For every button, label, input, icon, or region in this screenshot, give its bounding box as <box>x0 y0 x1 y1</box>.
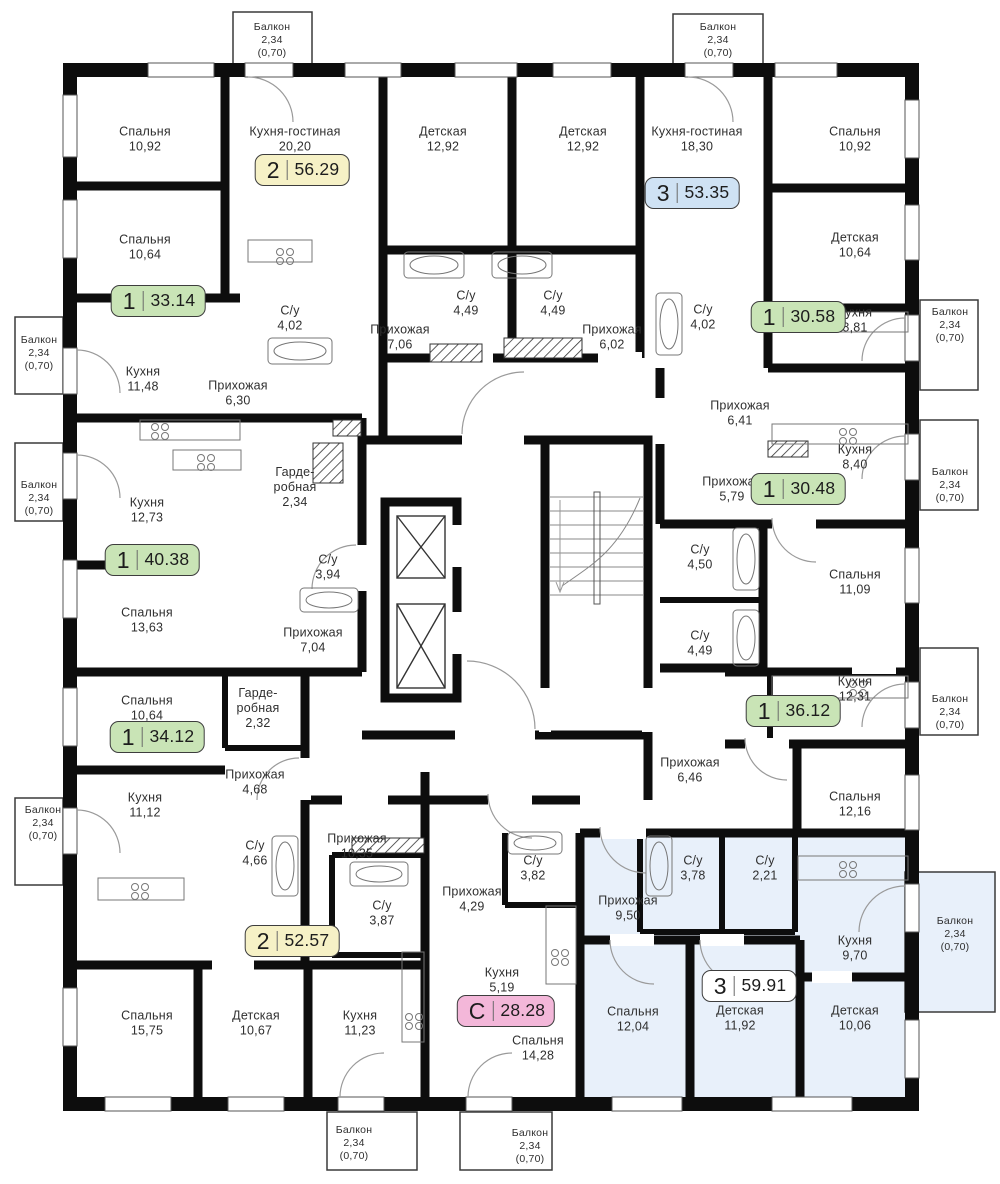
room-area: 13,63 <box>121 620 173 635</box>
room-area: 9,70 <box>838 948 872 963</box>
room-area: 4,66 <box>242 853 267 868</box>
balcony-coef: (0,70) <box>21 359 57 372</box>
room-area: 14,28 <box>512 1048 564 1063</box>
room-area: 20,20 <box>249 139 340 154</box>
room-name: Детская <box>232 1008 280 1023</box>
badge-rooms-count: 2 <box>255 930 276 953</box>
room-label: Прихожая9,50 <box>598 893 658 923</box>
badge-area: 30.58 <box>791 308 836 326</box>
room-area: 12,92 <box>419 139 467 154</box>
room-area: 4,49 <box>687 643 712 658</box>
room-name: Детская <box>831 230 879 245</box>
room-area: 11,92 <box>716 1018 764 1033</box>
room-name: Спальня <box>829 567 881 582</box>
balcony-area: 2,34 <box>21 492 57 505</box>
apartment-badge[interactable]: 133.14 <box>111 285 206 317</box>
room-label: С/у4,02 <box>690 302 715 332</box>
room-name: Кухня <box>838 442 872 457</box>
badge-rooms-count: 2 <box>265 159 286 182</box>
room-name: Спальня <box>119 232 171 247</box>
balcony-label: Балкон2,34(0,70) <box>932 693 968 731</box>
room-label: С/у3,78 <box>680 853 705 883</box>
room-name: Гарде- робная <box>237 686 280 716</box>
apartment-badge[interactable]: 353.35 <box>645 177 740 209</box>
room-name: Прихожая <box>598 893 658 908</box>
balcony-label: Балкон2,34(0,70) <box>21 334 57 372</box>
room-name: Прихожая <box>710 398 770 413</box>
room-area: 10,35 <box>327 846 387 861</box>
badge-divider <box>137 550 138 570</box>
apartment-badge[interactable]: 136.12 <box>746 695 841 727</box>
room-name: Детская <box>419 124 467 139</box>
badge-area: 52.57 <box>285 932 330 950</box>
room-label: Прихожая6,30 <box>208 378 268 408</box>
room-name: Кухня <box>126 364 160 379</box>
room-area: 12,31 <box>838 689 872 704</box>
room-name: Кухня <box>130 495 164 510</box>
room-name: Кухня <box>838 933 872 948</box>
room-area: 8,40 <box>838 457 872 472</box>
room-name: Спальня <box>829 789 881 804</box>
room-name: Прихожая <box>283 625 343 640</box>
room-name: С/у <box>277 303 302 318</box>
room-area: 7,06 <box>370 337 430 352</box>
room-area: 5,19 <box>485 980 519 995</box>
balcony-name: Балкон <box>932 306 968 319</box>
room-area: 2,21 <box>752 868 777 883</box>
room-label: С/у4,49 <box>453 288 478 318</box>
badge-divider <box>492 1001 493 1021</box>
room-label: Спальня10,92 <box>119 124 171 154</box>
apartment-badge[interactable]: 134.12 <box>110 721 205 753</box>
balcony-area: 2,34 <box>700 34 736 47</box>
room-area: 2,34 <box>274 494 317 509</box>
balcony-coef: (0,70) <box>932 491 968 504</box>
room-label: С/у4,49 <box>540 288 565 318</box>
room-area: 3,82 <box>520 868 545 883</box>
balcony-coef: (0,70) <box>336 1149 372 1162</box>
badge-divider <box>677 183 678 203</box>
room-name: С/у <box>687 542 712 557</box>
room-label: Прихожая6,46 <box>660 755 720 785</box>
balcony-coef: (0,70) <box>932 331 968 344</box>
room-label: Детская11,92 <box>716 1003 764 1033</box>
badge-divider <box>277 931 278 951</box>
balcony-name: Балкон <box>21 479 57 492</box>
room-area: 9,50 <box>598 908 658 923</box>
room-name: Спальня <box>121 605 173 620</box>
room-label: Спальня10,64 <box>121 693 173 723</box>
room-label: Прихожая6,41 <box>710 398 770 428</box>
balcony-area: 2,34 <box>336 1137 372 1150</box>
room-area: 11,12 <box>128 805 162 820</box>
badge-rooms-count: 3 <box>655 182 676 205</box>
room-name: Спальня <box>121 693 173 708</box>
room-label: Кухня11,23 <box>343 1008 377 1038</box>
room-name: Прихожая <box>208 378 268 393</box>
balcony-name: Балкон <box>700 21 736 34</box>
room-name: Детская <box>559 124 607 139</box>
apartment-badge[interactable]: 256.29 <box>255 154 350 186</box>
room-label: С/у3,94 <box>315 552 340 582</box>
room-area: 11,23 <box>343 1023 377 1038</box>
badge-rooms-count: 3 <box>712 975 733 998</box>
room-label: Кухня-гостиная18,30 <box>651 124 742 154</box>
room-name: С/у <box>540 288 565 303</box>
badge-area: 30.48 <box>791 480 836 498</box>
room-name: Прихожая <box>442 884 502 899</box>
room-label: Прихожая7,04 <box>283 625 343 655</box>
room-name: Прихожая <box>660 755 720 770</box>
room-label: С/у3,82 <box>520 853 545 883</box>
badge-divider <box>734 976 735 996</box>
room-label: Прихожая4,68 <box>225 767 285 797</box>
room-label: Спальня12,16 <box>829 789 881 819</box>
room-area: 10,64 <box>119 247 171 262</box>
room-area: 12,04 <box>607 1019 659 1034</box>
badge-rooms-count: 1 <box>761 478 782 501</box>
room-area: 11,09 <box>829 582 881 597</box>
room-label: Детская12,92 <box>419 124 467 154</box>
badge-divider <box>287 160 288 180</box>
balcony-label: Балкон2,34(0,70) <box>700 21 736 59</box>
room-name: Кухня-гостиная <box>651 124 742 139</box>
room-name: С/у <box>680 853 705 868</box>
balcony-name: Балкон <box>932 693 968 706</box>
room-area: 4,49 <box>540 303 565 318</box>
room-name: Кухня <box>485 965 519 980</box>
room-label: С/у4,49 <box>687 628 712 658</box>
room-name: Кухня-гостиная <box>249 124 340 139</box>
badge-rooms-count: 1 <box>115 549 136 572</box>
apartment-badge[interactable]: 130.58 <box>751 301 846 333</box>
room-label: Детская10,67 <box>232 1008 280 1038</box>
balcony-label: Балкон2,34(0,70) <box>937 915 973 953</box>
room-label: Детская12,92 <box>559 124 607 154</box>
room-area: 10,92 <box>829 139 881 154</box>
room-area: 4,02 <box>277 318 302 333</box>
room-name: С/у <box>242 838 267 853</box>
floor-plan: Спальня10,92Кухня-гостиная20,20Детская12… <box>0 0 1000 1184</box>
room-name: Кухня <box>128 790 162 805</box>
balcony-area: 2,34 <box>932 706 968 719</box>
room-label: Гарде- робная2,34 <box>274 465 317 509</box>
room-area: 3,78 <box>680 868 705 883</box>
badge-area: 53.35 <box>685 184 730 202</box>
room-name: С/у <box>520 853 545 868</box>
balcony-name: Балкон <box>336 1124 372 1137</box>
balcony-coef: (0,70) <box>937 940 973 953</box>
room-label: С/у4,50 <box>687 542 712 572</box>
room-name: Прихожая <box>225 767 285 782</box>
room-label: Кухня9,70 <box>838 933 872 963</box>
balcony-area: 2,34 <box>25 817 61 830</box>
room-area: 4,02 <box>690 317 715 332</box>
room-area: 4,29 <box>442 899 502 914</box>
room-area: 6,46 <box>660 770 720 785</box>
room-area: 10,92 <box>119 139 171 154</box>
room-name: Прихожая <box>370 322 430 337</box>
room-label: Детская10,64 <box>831 230 879 260</box>
balcony-label: Балкон2,34(0,70) <box>932 466 968 504</box>
apartment-badge[interactable]: 252.57 <box>245 925 340 957</box>
balcony-name: Балкон <box>932 466 968 479</box>
room-area: 7,04 <box>283 640 343 655</box>
room-area: 6,02 <box>582 337 642 352</box>
badge-divider <box>783 307 784 327</box>
room-area: 3,94 <box>315 567 340 582</box>
room-name: С/у <box>315 552 340 567</box>
balcony-coef: (0,70) <box>254 46 290 59</box>
room-label: Кухня11,48 <box>126 364 160 394</box>
apartment-badge[interactable]: 130.48 <box>751 473 846 505</box>
room-label: Кухня12,73 <box>130 495 164 525</box>
balcony-label: Балкон2,34(0,70) <box>21 479 57 517</box>
balcony-label: Балкон2,34(0,70) <box>25 804 61 842</box>
room-area: 4,50 <box>687 557 712 572</box>
apartment-badge[interactable]: С28.28 <box>457 995 555 1027</box>
balcony-coef: (0,70) <box>932 718 968 731</box>
room-name: Детская <box>716 1003 764 1018</box>
room-name: Кухня <box>838 674 872 689</box>
room-label: Кухня5,19 <box>485 965 519 995</box>
badge-rooms-count: 1 <box>761 306 782 329</box>
badge-rooms-count: С <box>467 1000 492 1023</box>
badge-area: 40.38 <box>145 551 190 569</box>
balcony-label: Балкон2,34(0,70) <box>336 1124 372 1162</box>
balcony-label: Балкон2,34(0,70) <box>512 1127 548 1165</box>
room-label: Кухня8,40 <box>838 442 872 472</box>
badge-area: 28.28 <box>500 1002 545 1020</box>
room-name: Спальня <box>121 1008 173 1023</box>
room-label: Спальня15,75 <box>121 1008 173 1038</box>
badge-rooms-count: 1 <box>121 290 142 313</box>
balcony-label: Балкон2,34(0,70) <box>254 21 290 59</box>
room-area: 10,06 <box>831 1018 879 1033</box>
room-area: 12,92 <box>559 139 607 154</box>
room-label: С/у4,02 <box>277 303 302 333</box>
apartment-badge[interactable]: 359.91 <box>702 970 797 1002</box>
badge-area: 33.14 <box>151 292 196 310</box>
balcony-label: Балкон2,34(0,70) <box>932 306 968 344</box>
balcony-name: Балкон <box>254 21 290 34</box>
room-name: Прихожая <box>582 322 642 337</box>
room-name: Гарде- робная <box>274 465 317 495</box>
room-name: Спальня <box>607 1004 659 1019</box>
room-area: 6,41 <box>710 413 770 428</box>
badge-rooms-count: 1 <box>120 726 141 749</box>
room-label: Спальня10,92 <box>829 124 881 154</box>
balcony-name: Балкон <box>512 1127 548 1140</box>
balcony-area: 2,34 <box>512 1140 548 1153</box>
room-label: Кухня-гостиная20,20 <box>249 124 340 154</box>
room-area: 11,48 <box>126 379 160 394</box>
room-label: Спальня11,09 <box>829 567 881 597</box>
room-area: 18,30 <box>651 139 742 154</box>
room-label: Спальня13,63 <box>121 605 173 635</box>
badge-area: 36.12 <box>786 702 831 720</box>
balcony-area: 2,34 <box>21 347 57 360</box>
balcony-coef: (0,70) <box>21 504 57 517</box>
room-name: С/у <box>453 288 478 303</box>
room-label: Прихожая10,35 <box>327 831 387 861</box>
room-label: С/у3,87 <box>369 898 394 928</box>
room-name: Спальня <box>829 124 881 139</box>
balcony-coef: (0,70) <box>700 46 736 59</box>
room-label: С/у4,66 <box>242 838 267 868</box>
balcony-area: 2,34 <box>932 479 968 492</box>
balcony-name: Балкон <box>25 804 61 817</box>
balcony-name: Балкон <box>937 915 973 928</box>
room-label: Прихожая6,02 <box>582 322 642 352</box>
room-name: Спальня <box>119 124 171 139</box>
room-area: 12,16 <box>829 804 881 819</box>
room-label: С/у2,21 <box>752 853 777 883</box>
room-label: Гарде- робная2,32 <box>237 686 280 730</box>
badge-divider <box>143 291 144 311</box>
balcony-area: 2,34 <box>254 34 290 47</box>
room-name: С/у <box>752 853 777 868</box>
badge-area: 59.91 <box>742 977 787 995</box>
badge-divider <box>783 479 784 499</box>
room-label: Спальня12,04 <box>607 1004 659 1034</box>
room-name: С/у <box>687 628 712 643</box>
badge-area: 56.29 <box>295 161 340 179</box>
room-area: 4,68 <box>225 782 285 797</box>
room-name: Кухня <box>343 1008 377 1023</box>
room-name: С/у <box>369 898 394 913</box>
balcony-coef: (0,70) <box>512 1152 548 1165</box>
balcony-name: Балкон <box>21 334 57 347</box>
room-name: Детская <box>831 1003 879 1018</box>
room-label: Кухня11,12 <box>128 790 162 820</box>
room-area: 15,75 <box>121 1023 173 1038</box>
room-label: Спальня10,64 <box>119 232 171 262</box>
room-label: Прихожая4,29 <box>442 884 502 914</box>
balcony-coef: (0,70) <box>25 829 61 842</box>
badge-divider <box>142 727 143 747</box>
room-label: Спальня14,28 <box>512 1033 564 1063</box>
room-area: 4,49 <box>453 303 478 318</box>
room-label: Кухня12,31 <box>838 674 872 704</box>
badge-divider <box>778 701 779 721</box>
balcony-area: 2,34 <box>937 928 973 941</box>
balcony-area: 2,34 <box>932 319 968 332</box>
room-area: 3,87 <box>369 913 394 928</box>
apartment-badge[interactable]: 140.38 <box>105 544 200 576</box>
room-label: Детская10,06 <box>831 1003 879 1033</box>
room-label: Прихожая7,06 <box>370 322 430 352</box>
room-area: 12,73 <box>130 510 164 525</box>
room-name: С/у <box>690 302 715 317</box>
room-name: Спальня <box>512 1033 564 1048</box>
labels-layer: Спальня10,92Кухня-гостиная20,20Детская12… <box>0 0 1000 1184</box>
badge-rooms-count: 1 <box>756 700 777 723</box>
room-area: 6,30 <box>208 393 268 408</box>
badge-area: 34.12 <box>150 728 195 746</box>
room-area: 10,64 <box>831 245 879 260</box>
room-name: Прихожая <box>327 831 387 846</box>
room-area: 10,67 <box>232 1023 280 1038</box>
room-area: 2,32 <box>237 715 280 730</box>
